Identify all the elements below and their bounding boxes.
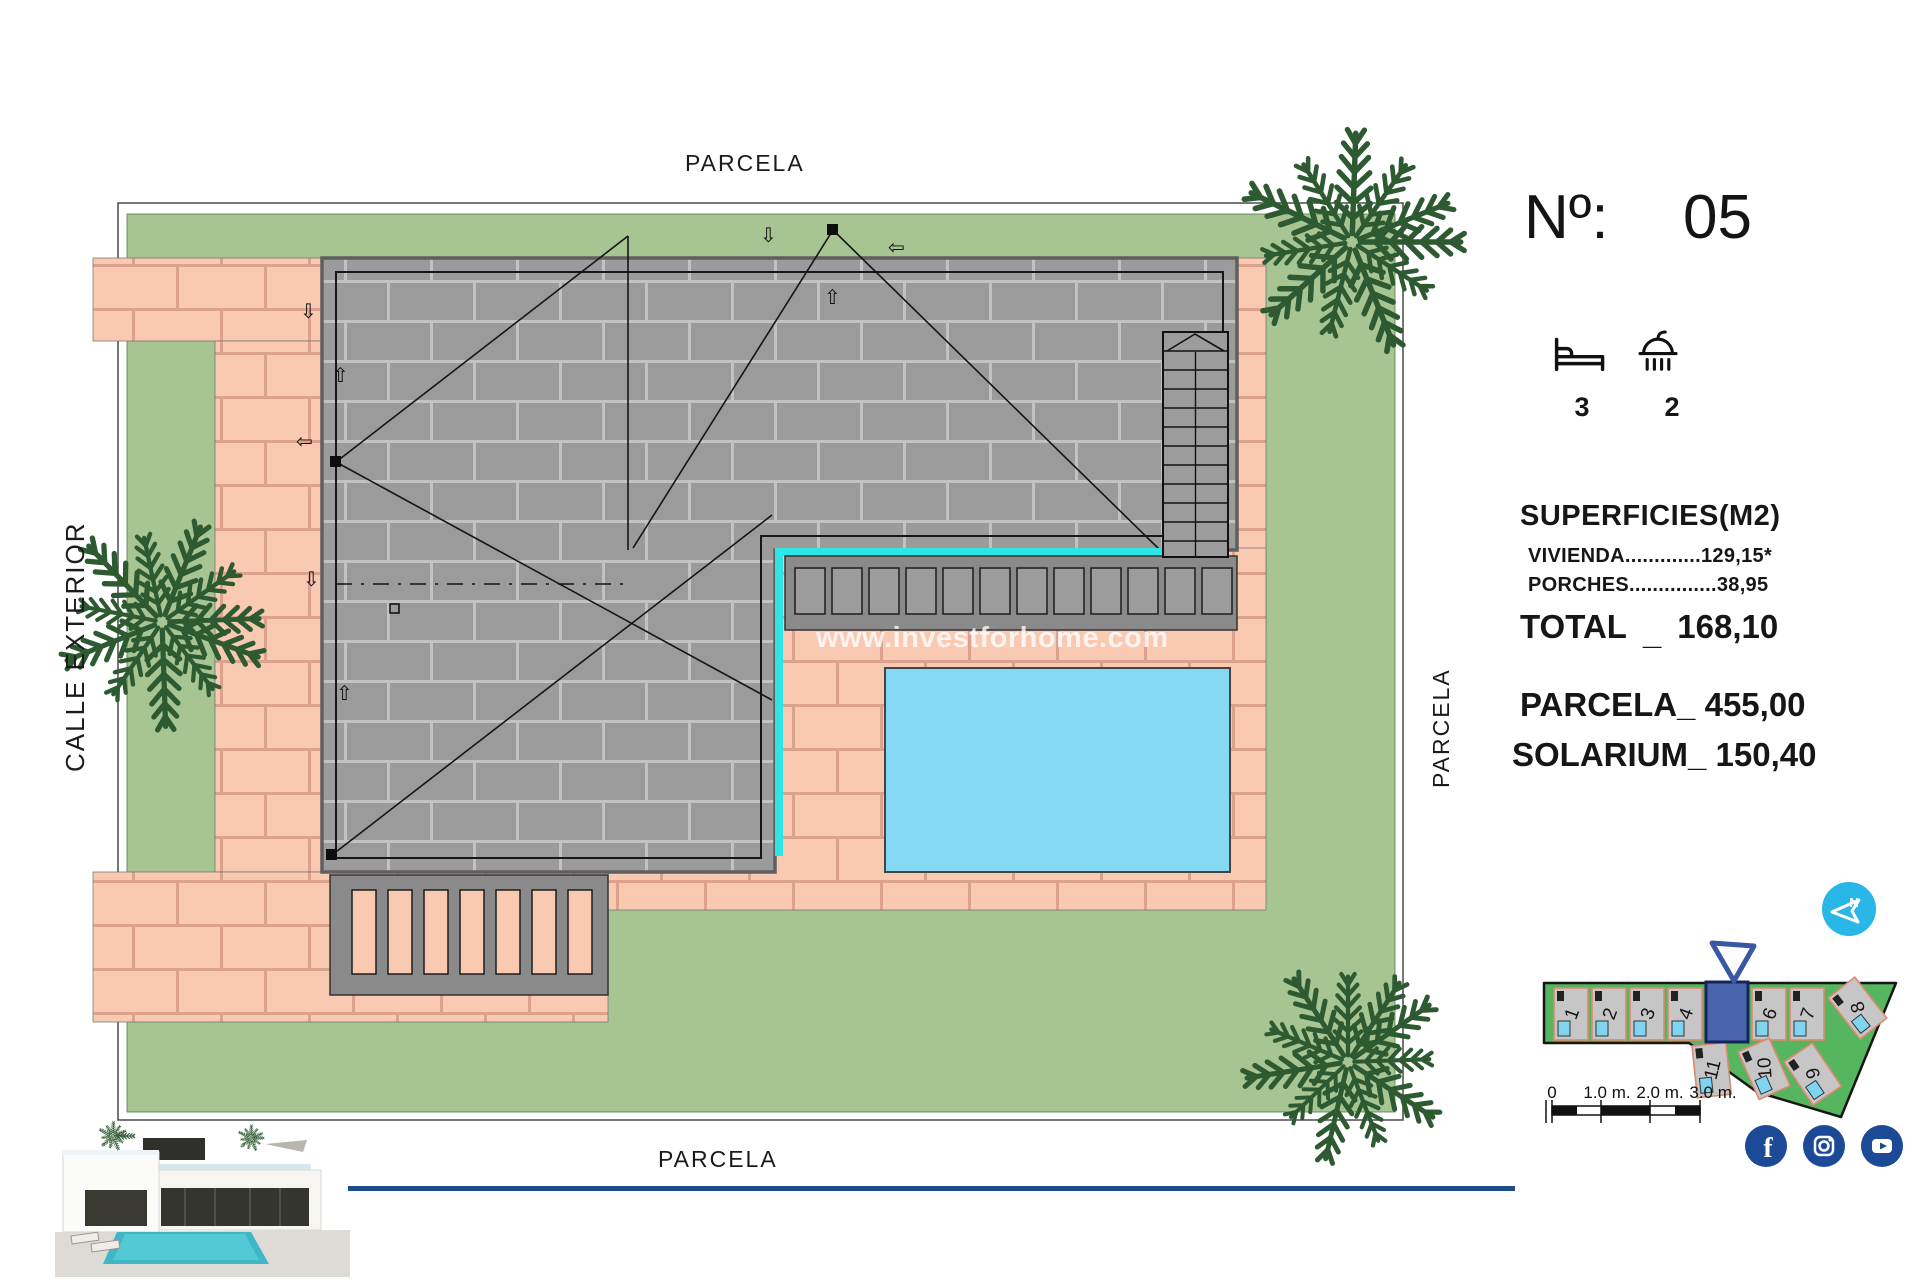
watermark: www.investforhome.com xyxy=(816,622,1169,655)
compass-icon: N xyxy=(1822,882,1876,936)
svg-text:10: 10 xyxy=(1754,1057,1776,1080)
total-value: 168,10 xyxy=(1677,608,1778,645)
parcela-surface-label: PARCELA_ xyxy=(1520,686,1695,723)
instagram-icon[interactable] xyxy=(1803,1125,1845,1167)
parcela-label-top: PARCELA xyxy=(685,150,805,177)
swimming-pool xyxy=(885,668,1230,872)
bathroom-count: 2 xyxy=(1648,392,1696,423)
minimap-plot: 6 xyxy=(1752,988,1786,1040)
youtube-icon[interactable] xyxy=(1861,1125,1903,1167)
svg-text:0: 0 xyxy=(1547,1083,1556,1102)
minimap-highlighted-plot xyxy=(1706,982,1748,1042)
svg-text:2.0 m.: 2.0 m. xyxy=(1636,1083,1683,1102)
total-separator: _ xyxy=(1643,614,1661,652)
svg-text:⇧: ⇧ xyxy=(332,365,349,387)
villa-photo xyxy=(55,1112,350,1277)
footer-divider-line xyxy=(348,1186,1515,1191)
staircase xyxy=(1163,332,1228,557)
surfaces-title: SUPERFICIES(M2) xyxy=(1520,500,1780,533)
minimap-plot: 2 xyxy=(1592,988,1626,1040)
svg-text:1.0 m.: 1.0 m. xyxy=(1583,1083,1630,1102)
scale-bar: 0 1.0 m. 2.0 m. 3.0 m. xyxy=(1546,1083,1737,1123)
villa-number-label: Nº: xyxy=(1524,182,1609,253)
solarium-surface-value: 150,40 xyxy=(1716,736,1817,773)
shower-icon xyxy=(1640,332,1676,369)
facebook-icon[interactable]: f xyxy=(1745,1125,1787,1167)
svg-text:⇧: ⇧ xyxy=(824,287,841,309)
svg-text:3.0 m.: 3.0 m. xyxy=(1689,1083,1736,1102)
porch-pergola xyxy=(785,556,1237,630)
parcela-label-bottom: PARCELA xyxy=(658,1146,778,1173)
parcela-surface: PARCELA_ 455,00 xyxy=(1520,686,1806,724)
svg-text:⇧: ⇧ xyxy=(336,683,353,705)
minimap-plot: 1 xyxy=(1554,988,1588,1040)
minimap-plot: 4 xyxy=(1668,988,1702,1040)
svg-text:⇩: ⇩ xyxy=(300,301,317,323)
parcela-surface-value: 455,00 xyxy=(1705,686,1806,723)
solarium-surface-label: SOLARIUM_ xyxy=(1512,736,1706,773)
calle-exterior-label: CALLE EXTERIOR xyxy=(60,512,91,772)
location-triangle-icon xyxy=(1712,943,1754,981)
vivienda-surface: VIVIENDA.............129,15* xyxy=(1528,545,1772,568)
plan-sheet: ⇩⇧⇦ ⇩⇧ ⇩⇧⇦ xyxy=(0,0,1920,1280)
entrance-trellis xyxy=(330,875,608,995)
bed-icon xyxy=(1557,339,1603,369)
villa-number: Nº: 05 xyxy=(1524,182,1752,253)
villa-number-value: 05 xyxy=(1683,182,1752,253)
svg-text:⇩: ⇩ xyxy=(303,569,320,591)
svg-text:⇦: ⇦ xyxy=(296,431,313,453)
minimap-plot: 7 xyxy=(1790,988,1824,1040)
bedroom-count: 3 xyxy=(1554,392,1610,423)
svg-text:⇩: ⇩ xyxy=(760,225,777,247)
svg-text:f: f xyxy=(1763,1133,1773,1164)
porches-surface: PORCHES...............38,95 xyxy=(1528,574,1768,597)
svg-text:N: N xyxy=(1849,895,1858,910)
minimap-plot: 3 xyxy=(1630,988,1664,1040)
amenity-icons xyxy=(1548,328,1698,384)
solarium-surface: SOLARIUM_ 150,40 xyxy=(1512,736,1816,774)
parcela-label-right: PARCELA xyxy=(1428,608,1455,788)
total-surface: TOTAL_168,10 xyxy=(1520,608,1778,646)
total-label: TOTAL xyxy=(1520,608,1627,645)
svg-text:⇦: ⇦ xyxy=(888,237,905,259)
